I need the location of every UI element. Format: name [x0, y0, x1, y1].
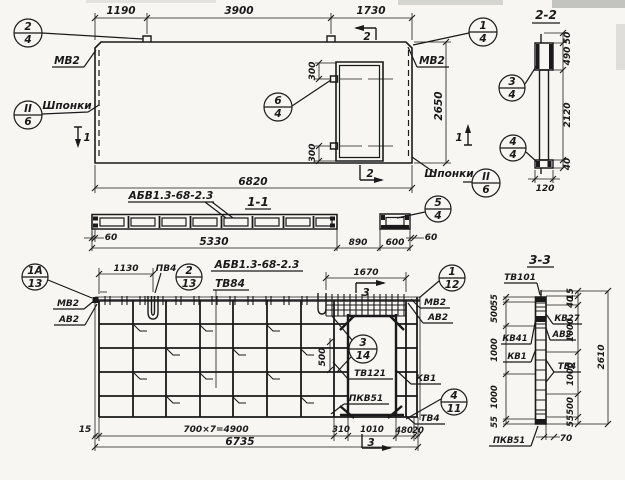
dim-1190: 1190 [106, 5, 135, 17]
callout-num: 2 [24, 21, 31, 33]
smudge [398, 0, 503, 5]
callout-3-14: 3 14 [332, 316, 377, 372]
label-kv41: КВ41 [502, 334, 527, 344]
arrow-right-icon [382, 445, 392, 451]
dim-1730: 1730 [356, 5, 385, 17]
callout-num: 1 [448, 266, 455, 278]
corner-anchor [93, 297, 99, 303]
section-2-label: 2 [366, 168, 373, 180]
dim-2610: 2610 [597, 344, 607, 369]
callout-II-6-right: II 6 [472, 169, 500, 197]
plan-view: 1190 3900 1730 6820 2650 300 300 1 1 [14, 5, 500, 197]
panel-outline [95, 42, 412, 163]
dim-70-lines [536, 424, 560, 440]
label-kv1: КВ1 [416, 374, 436, 384]
label-tv4: ТВ4 [558, 362, 576, 372]
callout-sheet: 13 [182, 278, 197, 290]
smudge [86, 0, 216, 3]
callout-sheet: 4 [478, 33, 486, 45]
dim-120: 120 [536, 184, 555, 194]
callout-1-12: 1 12 [419, 265, 465, 298]
section-mark-1-right: 1 [455, 124, 472, 145]
dim-700x7: 700×7=4900 [183, 425, 248, 435]
label-tv84: ТВ84 [215, 278, 245, 290]
dim-500: 500 [318, 348, 328, 367]
label-mv2-right: МВ2 [419, 55, 445, 67]
section-1-1: АБВ1.3-68-2.3 1-1 60 60 5330 890 600 5 4 [84, 190, 451, 251]
label-av2-left: АВ2 [58, 315, 79, 325]
label-kv27: КВ27 [554, 314, 579, 324]
dim-2120: 2120 [563, 102, 573, 127]
panel-web [540, 70, 549, 160]
dim-2650: 2650 [433, 91, 445, 120]
dim-20: 20 [412, 426, 424, 436]
callout-sheet: 12 [445, 279, 460, 291]
arrow-right-icon [374, 177, 384, 183]
section-1-label: 1 [83, 132, 90, 144]
mark-leader [128, 202, 233, 218]
callout-num: 3 [359, 337, 366, 349]
label-av2: АВ2 [552, 330, 572, 340]
callout-num: 2 [185, 265, 192, 277]
section-2-2-title: 2-2 [535, 8, 557, 22]
dim-right-500: 500 [566, 397, 576, 415]
blueprint-sheet: 1190 3900 1730 6820 2650 300 300 1 1 [0, 0, 625, 480]
rebar-plan: АБВ1.3-68-2.3 ТВ84 1130 ПВ4 1670 3 [22, 259, 467, 451]
pv4-leader [155, 273, 161, 293]
callout-sheet: 11 [447, 403, 462, 415]
section-mark-2-bottom: 2 [360, 165, 384, 183]
callout-num: 6 [274, 95, 281, 107]
dim-490: 490 [563, 47, 573, 67]
end-segment-core [386, 218, 404, 226]
section-mark-3-bottom: 3 [362, 434, 392, 451]
callout-sheet: 4 [273, 108, 281, 120]
callout-6-4: 6 4 [264, 80, 331, 121]
dim-310: 310 [332, 425, 350, 435]
callout-1-4: 1 4 [413, 18, 497, 46]
section-2-2: 2-2 50 490 2120 40 120 3 4 4 4 [499, 8, 573, 194]
callout-num: 5 [434, 197, 441, 209]
dim-left-1000a: 1000 [490, 338, 500, 362]
bar-hook-marks [134, 325, 314, 403]
rebar-title: АБВ1.3-68-2.3 [214, 259, 300, 271]
callout-4-4: 4 4 [500, 135, 537, 162]
label-mv2-right: МВ2 [424, 298, 446, 308]
arrow-down-icon [75, 139, 81, 148]
dim-40: 40 [563, 158, 573, 172]
rib-fill [549, 44, 553, 69]
section-mark-3-top: 3 [356, 280, 386, 299]
dim-6820: 6820 [238, 176, 267, 188]
section-1-label: 1 [455, 132, 462, 144]
label-mv2-left: МВ2 [54, 55, 80, 67]
panel-mark-label: АБВ1.3-68-2.3 [128, 190, 214, 202]
section-mark-2-top: 2 [354, 25, 376, 43]
callout-num: 1А [27, 265, 42, 277]
panel-drawing: 1190 3900 1730 6820 2650 300 300 1 1 [0, 0, 625, 480]
arrow-right-icon [376, 280, 386, 286]
callout-II-6-left: II 6 [14, 101, 42, 129]
dim-60-right: 60 [425, 233, 438, 243]
keyway-dashed-edges [99, 50, 409, 160]
label-mv2-left: МВ2 [57, 299, 79, 309]
section-2-label: 2 [363, 31, 370, 43]
label-tv101: ТВ101 [504, 273, 536, 283]
dim-300-bot: 300 [308, 144, 318, 163]
callout-num: 4 [449, 390, 457, 402]
callout-1a-13: 1А 13 [22, 264, 92, 298]
label-keys-left: Шпонки [42, 100, 92, 112]
section-3-3: 3-3 ТВ101 55 500 1000 1000 55 15 40 1000… [489, 253, 611, 446]
dim-890: 890 [349, 238, 368, 248]
hollow-cores [100, 218, 332, 226]
label-pkv51: ПКВ51 [349, 394, 383, 404]
dim-3900: 3900 [224, 5, 253, 17]
dim-5330: 5330 [199, 236, 228, 248]
callout-num: 1 [479, 20, 486, 32]
label-keys-right: Шпонки [424, 168, 474, 180]
pkv51-leader [331, 404, 389, 414]
callout-sheet: 4 [507, 89, 515, 101]
section-mark-1-left: 1 [74, 127, 91, 148]
callout-num: II [482, 171, 490, 183]
section-3-3-title: 3-3 [529, 253, 551, 267]
callout-sheet: 14 [356, 350, 371, 362]
callout-num: 4 [508, 136, 516, 148]
label-tv4: ТВ4 [420, 414, 439, 424]
callout-sheet: 6 [482, 184, 489, 196]
dim-1670: 1670 [353, 268, 378, 278]
callout-sheet: 13 [28, 278, 43, 290]
dim-300-top: 300 [308, 62, 318, 81]
dim-right-40: 40 [566, 296, 576, 309]
label-pv4: ПВ4 [156, 264, 177, 274]
arrow-up-icon [465, 124, 471, 133]
dim-1130: 1130 [113, 264, 138, 274]
section-1-1-title: 1-1 [247, 195, 269, 209]
dim-60-left: 60 [105, 233, 118, 243]
dim-15: 15 [79, 425, 92, 435]
dim-left-55b: 55 [490, 416, 500, 428]
callout-num: 3 [508, 76, 515, 88]
label-pkv51: ПКВ51 [493, 436, 525, 446]
callout-sheet: 4 [23, 34, 31, 46]
callout-sheet: 4 [433, 210, 441, 222]
rib-fill [548, 161, 552, 167]
dim-70: 70 [560, 434, 573, 444]
callout-num: II [24, 103, 32, 115]
lifting-hooks [143, 36, 335, 42]
tv101-leader [504, 283, 540, 295]
dim-left-55: 55 [490, 294, 500, 306]
anchor-axis-lines [340, 79, 393, 146]
callout-sheet: 4 [508, 149, 516, 161]
callout-3-4: 3 4 [499, 62, 539, 101]
dim-6735: 6735 [225, 436, 254, 448]
dim-50: 50 [563, 32, 573, 45]
smudge [616, 24, 625, 70]
dim-left-500: 500 [490, 305, 500, 323]
label-kv1: КВ1 [507, 352, 526, 362]
smudge [552, 0, 625, 8]
callout-2-13: 2 13 [176, 264, 202, 290]
lifting-loop-right [318, 293, 326, 314]
dim-left-1000b: 1000 [490, 385, 500, 409]
callout-sheet: 6 [24, 116, 31, 128]
dim-600: 600 [386, 238, 405, 248]
label-tv121: ТВ121 [354, 369, 386, 379]
section-3-label: 3 [362, 287, 369, 299]
dim-right-55: 55 [566, 415, 576, 427]
dim-1010: 1010 [360, 425, 384, 435]
label-av2-right: АВ2 [427, 313, 448, 323]
dim-480: 480 [394, 426, 413, 436]
